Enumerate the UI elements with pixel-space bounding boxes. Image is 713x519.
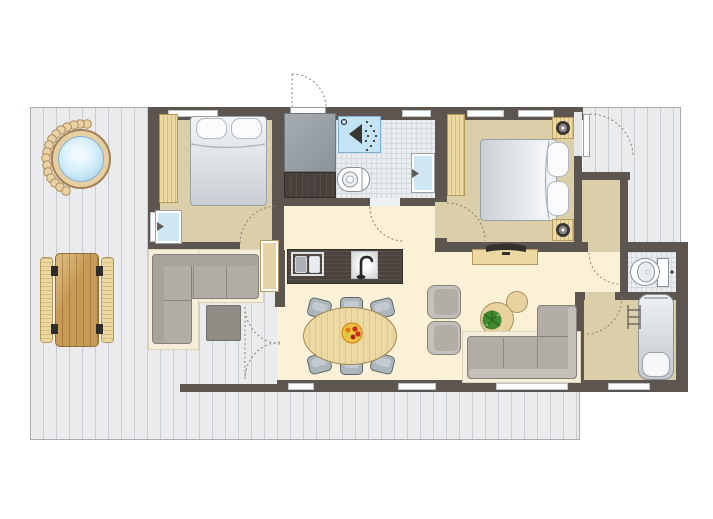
window-bathroom2-bottom xyxy=(608,383,650,390)
wall-porch-top xyxy=(574,172,630,180)
ottoman xyxy=(206,305,241,341)
sofa-cushion-gap xyxy=(503,338,504,368)
nightstand xyxy=(552,117,574,139)
doorway-bedroom2 xyxy=(435,202,447,238)
dining-table xyxy=(303,307,397,365)
wall-bath-hall-a xyxy=(284,198,370,206)
bathtub-basin xyxy=(642,352,670,377)
terrace-sofa-back-top xyxy=(153,255,258,266)
terrace-sofa-back-left xyxy=(153,255,164,343)
sofa-cushion-gap xyxy=(537,338,538,368)
corner-sofa-back-right xyxy=(568,307,576,377)
floor-plan xyxy=(0,0,713,519)
kitchen-sink-drainer xyxy=(309,256,320,273)
window-bedroom2-top-b xyxy=(518,110,554,117)
kitchen-sink-basin xyxy=(295,256,307,273)
toilet-bathroom xyxy=(337,167,370,192)
wardrobe-bedroom1 xyxy=(159,114,178,203)
terrace-sofa-cushion-gap xyxy=(226,266,227,298)
porch-floor xyxy=(582,180,620,244)
armchair-seat xyxy=(434,325,458,351)
tv-cabinet xyxy=(472,249,538,265)
dresser xyxy=(284,172,336,198)
picnic-clamp xyxy=(51,266,58,276)
window-dining-bottom xyxy=(288,383,314,390)
window-bathroom-top xyxy=(402,110,431,117)
shower xyxy=(338,116,381,153)
terrace-sofa-cushion-gap xyxy=(164,300,191,301)
fridge-cabinet xyxy=(284,113,336,172)
window-living-bottom-a xyxy=(398,383,436,390)
pillow xyxy=(231,118,262,139)
armchair xyxy=(427,285,461,319)
wall-right xyxy=(676,242,688,392)
deck-bottom xyxy=(148,384,580,440)
nightstand xyxy=(552,219,574,241)
armchair xyxy=(427,321,461,355)
window-bedroom2-top-a xyxy=(467,110,504,117)
toilet-wc-bowl xyxy=(630,258,660,286)
wall-bedroom2-right-b xyxy=(574,156,582,242)
wall-porch-right xyxy=(620,180,628,292)
pillow xyxy=(196,118,227,139)
armchair-seat xyxy=(434,289,458,315)
doorway-porch xyxy=(588,242,620,252)
doorway-bathroom xyxy=(370,198,400,206)
front-door-arc xyxy=(292,74,326,108)
side-table xyxy=(261,241,278,291)
doorway-bathroom2 xyxy=(585,292,615,300)
hot-tub-water xyxy=(58,136,104,182)
vestibule-floor xyxy=(575,252,620,292)
wall-bedroom1-right xyxy=(272,107,284,252)
bed-bedroom2 xyxy=(480,139,557,221)
wardrobe-bedroom2 xyxy=(447,114,465,196)
corner-sofa-back-bottom xyxy=(469,369,575,378)
picnic-clamp xyxy=(51,324,58,334)
doorway-deck-bedroom2 xyxy=(574,112,582,156)
deck-door-leaf xyxy=(583,114,590,157)
kitchen-tap-area xyxy=(351,251,378,279)
picnic-table xyxy=(55,253,99,347)
pillow xyxy=(547,142,569,177)
picnic-clamp xyxy=(96,324,103,334)
washbasin-bathroom xyxy=(412,154,434,192)
picnic-clamp xyxy=(96,266,103,276)
wall-bath-bedroom2-b xyxy=(435,238,447,252)
terrace-edge xyxy=(180,384,280,392)
window-living-bottom-b xyxy=(496,383,568,390)
terrace-sofa-cushion-gap xyxy=(193,266,194,298)
wall-bath-bedroom2-a xyxy=(435,107,447,202)
washbasin-bedroom1 xyxy=(156,211,181,243)
pillow xyxy=(547,181,569,216)
